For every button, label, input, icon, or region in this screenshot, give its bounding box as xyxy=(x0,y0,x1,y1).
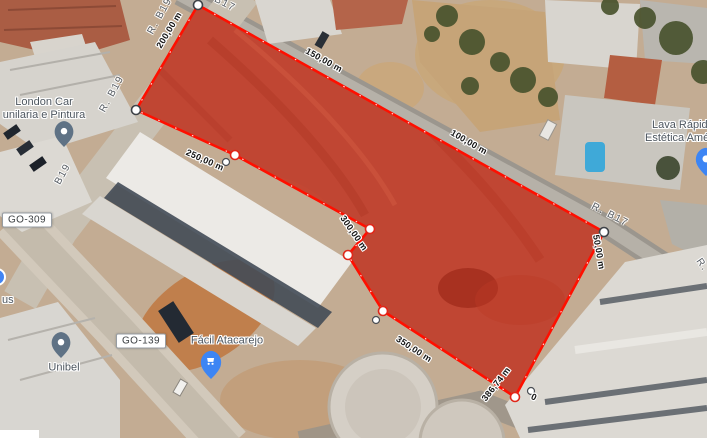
ui-fragment xyxy=(0,430,39,438)
vertex-marker[interactable] xyxy=(600,228,609,237)
map-canvas[interactable]: 200,00 m 150,00 m 100,00 m 250,00 m 300,… xyxy=(0,0,707,438)
road-badge-go139: GO-139 xyxy=(116,334,166,349)
vertex-marker[interactable] xyxy=(194,1,203,10)
distance-tick-marker xyxy=(373,317,380,324)
vertex-marker[interactable] xyxy=(511,393,520,402)
vertex-marker[interactable] xyxy=(132,106,141,115)
vertex-marker[interactable] xyxy=(379,307,388,316)
vertex-marker[interactable] xyxy=(231,151,240,160)
distance-tick-marker xyxy=(223,159,230,166)
road-badge-go309: GO-309 xyxy=(2,213,52,228)
distance-tick-marker xyxy=(528,388,535,395)
satellite-map xyxy=(0,0,707,438)
vertex-marker[interactable] xyxy=(344,251,353,260)
vertex-marker[interactable] xyxy=(366,225,375,234)
